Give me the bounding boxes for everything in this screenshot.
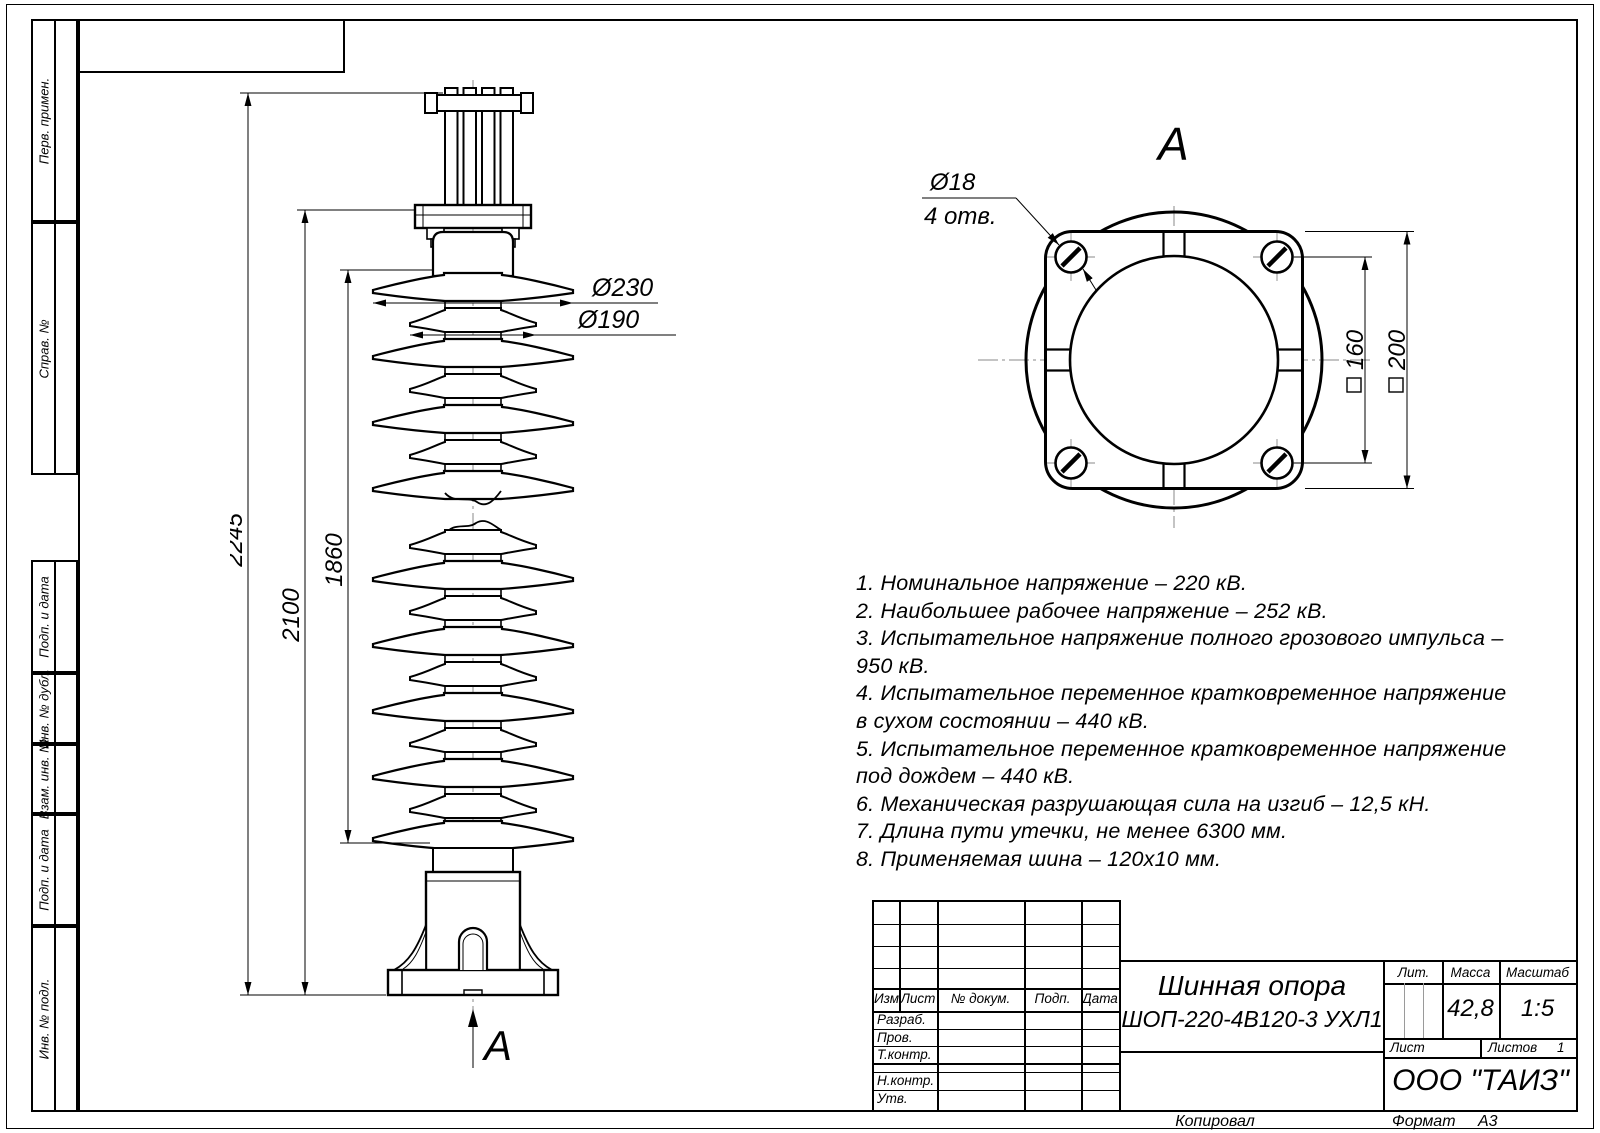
margin-box-inv-dubl: Инв. № дубл. (31, 673, 78, 744)
front-view-drawing: A 2245 2100 1860 Ø230 Ø190 (230, 80, 710, 1080)
rev-col-izm: Изм. (874, 991, 899, 1006)
dim-to-flange: 2100 (278, 588, 305, 643)
dim-insulator-height: 1860 (321, 533, 348, 587)
top-view-label: A (1155, 118, 1189, 170)
margin-label: Инв. № подл. (36, 979, 51, 1060)
sheet-label: Лист (1390, 1040, 1425, 1055)
margin-label: Подп. и дата (36, 576, 51, 657)
margin-label: Справ. № (36, 319, 51, 378)
margin-box-podp-data-1: Подп. и дата (31, 560, 78, 673)
doc-name-line1: Шинная опора (1121, 970, 1383, 1002)
margin-box-sprav-n: Справ. № (31, 222, 78, 475)
terminal-clamp (415, 88, 533, 276)
title-block-empty-cell (1119, 1051, 1385, 1112)
square-symbol (1347, 378, 1361, 392)
dim-dia-small: Ø190 (577, 306, 639, 334)
note-line: 7. Длина пути утечки, не менее 6300 мм. (856, 818, 1562, 846)
title-block-rev-table: Изм. Лист № докум. Подп. Дата Разраб. Пр… (872, 900, 1121, 1112)
margin-box-podp-data-2: Подп. и дата (31, 814, 78, 926)
sign-row-razrab: Разраб. (877, 1012, 926, 1027)
holes-count-label: 4 отв. (924, 203, 997, 230)
top-view-drawing: A (920, 110, 1480, 530)
copied-label: Копировал (1145, 1113, 1285, 1131)
mass-value: 42,8 (1442, 995, 1499, 1023)
scale-label: Масштаб (1499, 965, 1576, 980)
rev-col-podp: Подп. (1024, 991, 1081, 1006)
holes-dia-label: Ø18 (929, 169, 976, 196)
margin-box-inv-podl: Инв. № подл. (31, 926, 78, 1112)
margin-label: Взам. инв. № (36, 739, 51, 819)
note-line: 1. Номинальное напряжение – 220 кВ. (856, 570, 1562, 598)
note-line: 4. Испытательное переменное кратковремен… (856, 680, 1562, 708)
margin-box-divider (54, 224, 56, 473)
sheets-value: 1 (1557, 1040, 1565, 1055)
view-arrow-label: A (481, 1022, 512, 1069)
scale-value: 1:5 (1499, 995, 1576, 1023)
sheets-label: Листов (1488, 1040, 1537, 1055)
company-name: ООО "ТАИЗ" (1385, 1064, 1576, 1098)
dim-bolt-spacing: 160 (1342, 329, 1369, 370)
sign-row-prov: Пров. (877, 1030, 913, 1045)
margin-box-divider (54, 928, 56, 1110)
base-flange (388, 848, 558, 995)
margin-box-divider (54, 21, 56, 220)
margin-box-divider (54, 675, 56, 742)
doc-name-line2: ШОП-220-4В120-3 УХЛ1 (1121, 1006, 1383, 1033)
lit-label: Лит. (1385, 965, 1442, 980)
note-line: 8. Применяемая шина – 120x10 мм. (856, 846, 1562, 874)
margin-box-perv-primen: Перв. примен. (31, 19, 78, 222)
format-label: Формат (1392, 1113, 1456, 1131)
dim-total-height: 2245 (230, 513, 248, 568)
note-line: 6. Механическая разрушающая сила на изги… (856, 791, 1562, 819)
square-symbol (1389, 378, 1403, 392)
margin-label: Подп. и дата (36, 829, 51, 910)
note-line: в сухом состоянии – 440 кВ. (856, 708, 1562, 736)
margin-box-divider (54, 562, 56, 671)
note-line: 2. Наибольшее рабочее напряжение – 252 к… (856, 598, 1562, 626)
technical-notes: 1. Номинальное напряжение – 220 кВ. 2. Н… (856, 570, 1562, 874)
mass-label: Масса (1442, 965, 1499, 980)
dim-flange-size: 200 (1384, 329, 1411, 371)
note-line: 3. Испытательное напряжение полного гроз… (856, 625, 1562, 653)
sign-row-nkontr: Н.контр. (877, 1073, 934, 1088)
margin-box-divider (54, 816, 56, 924)
title-block-name-cell: Шинная опора ШОП-220-4В120-3 УХЛ1 (1119, 960, 1385, 1053)
margin-box-vzam-inv: Взам. инв. № (31, 744, 78, 814)
note-line: 950 кВ. (856, 653, 1562, 681)
view-direction-arrow (468, 1009, 478, 1027)
rev-col-list: Лист (899, 991, 937, 1006)
drawing-sheet: Перв. примен. Справ. № Подп. и дата Инв.… (0, 0, 1600, 1133)
note-line: 5. Испытательное переменное кратковремен… (856, 736, 1562, 764)
rev-col-data: Дата (1081, 991, 1119, 1006)
sign-row-utv: Утв. (877, 1091, 908, 1106)
note-line: под дождем – 440 кВ. (856, 763, 1562, 791)
margin-label: Перв. примен. (36, 77, 51, 163)
sign-row-tkontr: Т.контр. (877, 1047, 931, 1062)
margin-box-divider (54, 746, 56, 812)
top-left-stamp-box (78, 19, 345, 73)
margin-label: Инв. № дубл. (36, 669, 51, 749)
dim-dia-large: Ø230 (591, 274, 653, 302)
format-value: А3 (1478, 1113, 1498, 1131)
rev-col-dokum: № докум. (937, 991, 1024, 1006)
title-block-right: Лит. Масса Масштаб 42,8 1:5 Лист Листов … (1383, 960, 1578, 1112)
